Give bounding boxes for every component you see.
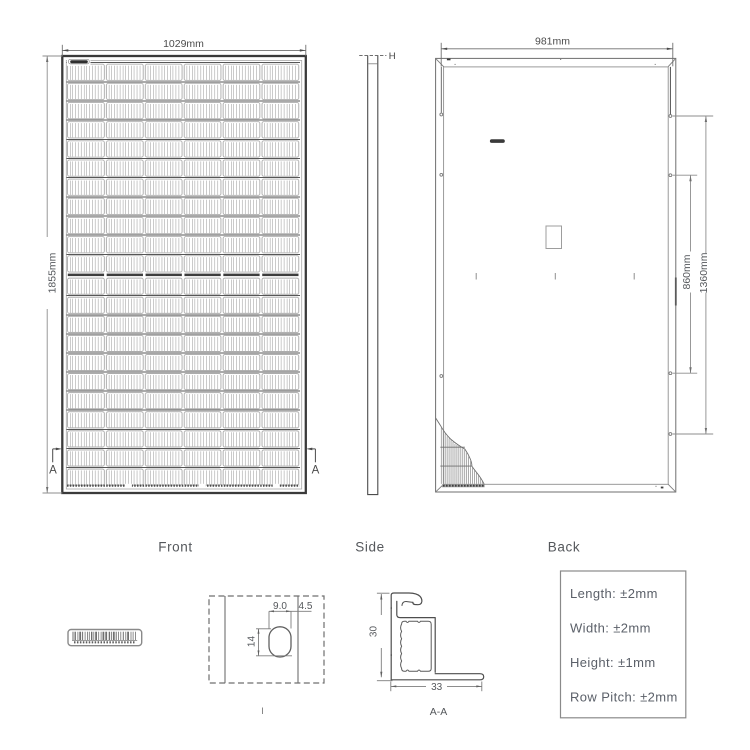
svg-text:1029mm: 1029mm (163, 38, 204, 50)
svg-text:A-A: A-A (430, 706, 448, 718)
svg-text:1360mm: 1360mm (698, 252, 710, 293)
svg-text:A: A (49, 465, 57, 477)
svg-text:Back: Back (548, 540, 580, 555)
svg-text:1855mm: 1855mm (47, 252, 59, 293)
svg-text:33: 33 (431, 682, 443, 693)
svg-text:9.0: 9.0 (273, 601, 287, 612)
svg-text:Width: ±2mm: Width: ±2mm (570, 621, 651, 636)
svg-text:I: I (261, 706, 264, 717)
svg-text:Side: Side (355, 540, 384, 555)
svg-text:Length: ±2mm: Length: ±2mm (570, 586, 658, 601)
svg-text:Front: Front (158, 540, 193, 555)
svg-text:14: 14 (246, 636, 257, 648)
svg-text:860mm: 860mm (681, 254, 693, 289)
svg-text:4.5: 4.5 (299, 601, 313, 612)
svg-text:Row Pitch: ±2mm: Row Pitch: ±2mm (570, 690, 678, 705)
svg-text:H: H (389, 51, 396, 62)
svg-text:981mm: 981mm (535, 36, 570, 48)
svg-text:Height: ±1mm: Height: ±1mm (570, 655, 656, 670)
svg-text:A: A (312, 465, 320, 477)
svg-text:30: 30 (368, 626, 379, 638)
